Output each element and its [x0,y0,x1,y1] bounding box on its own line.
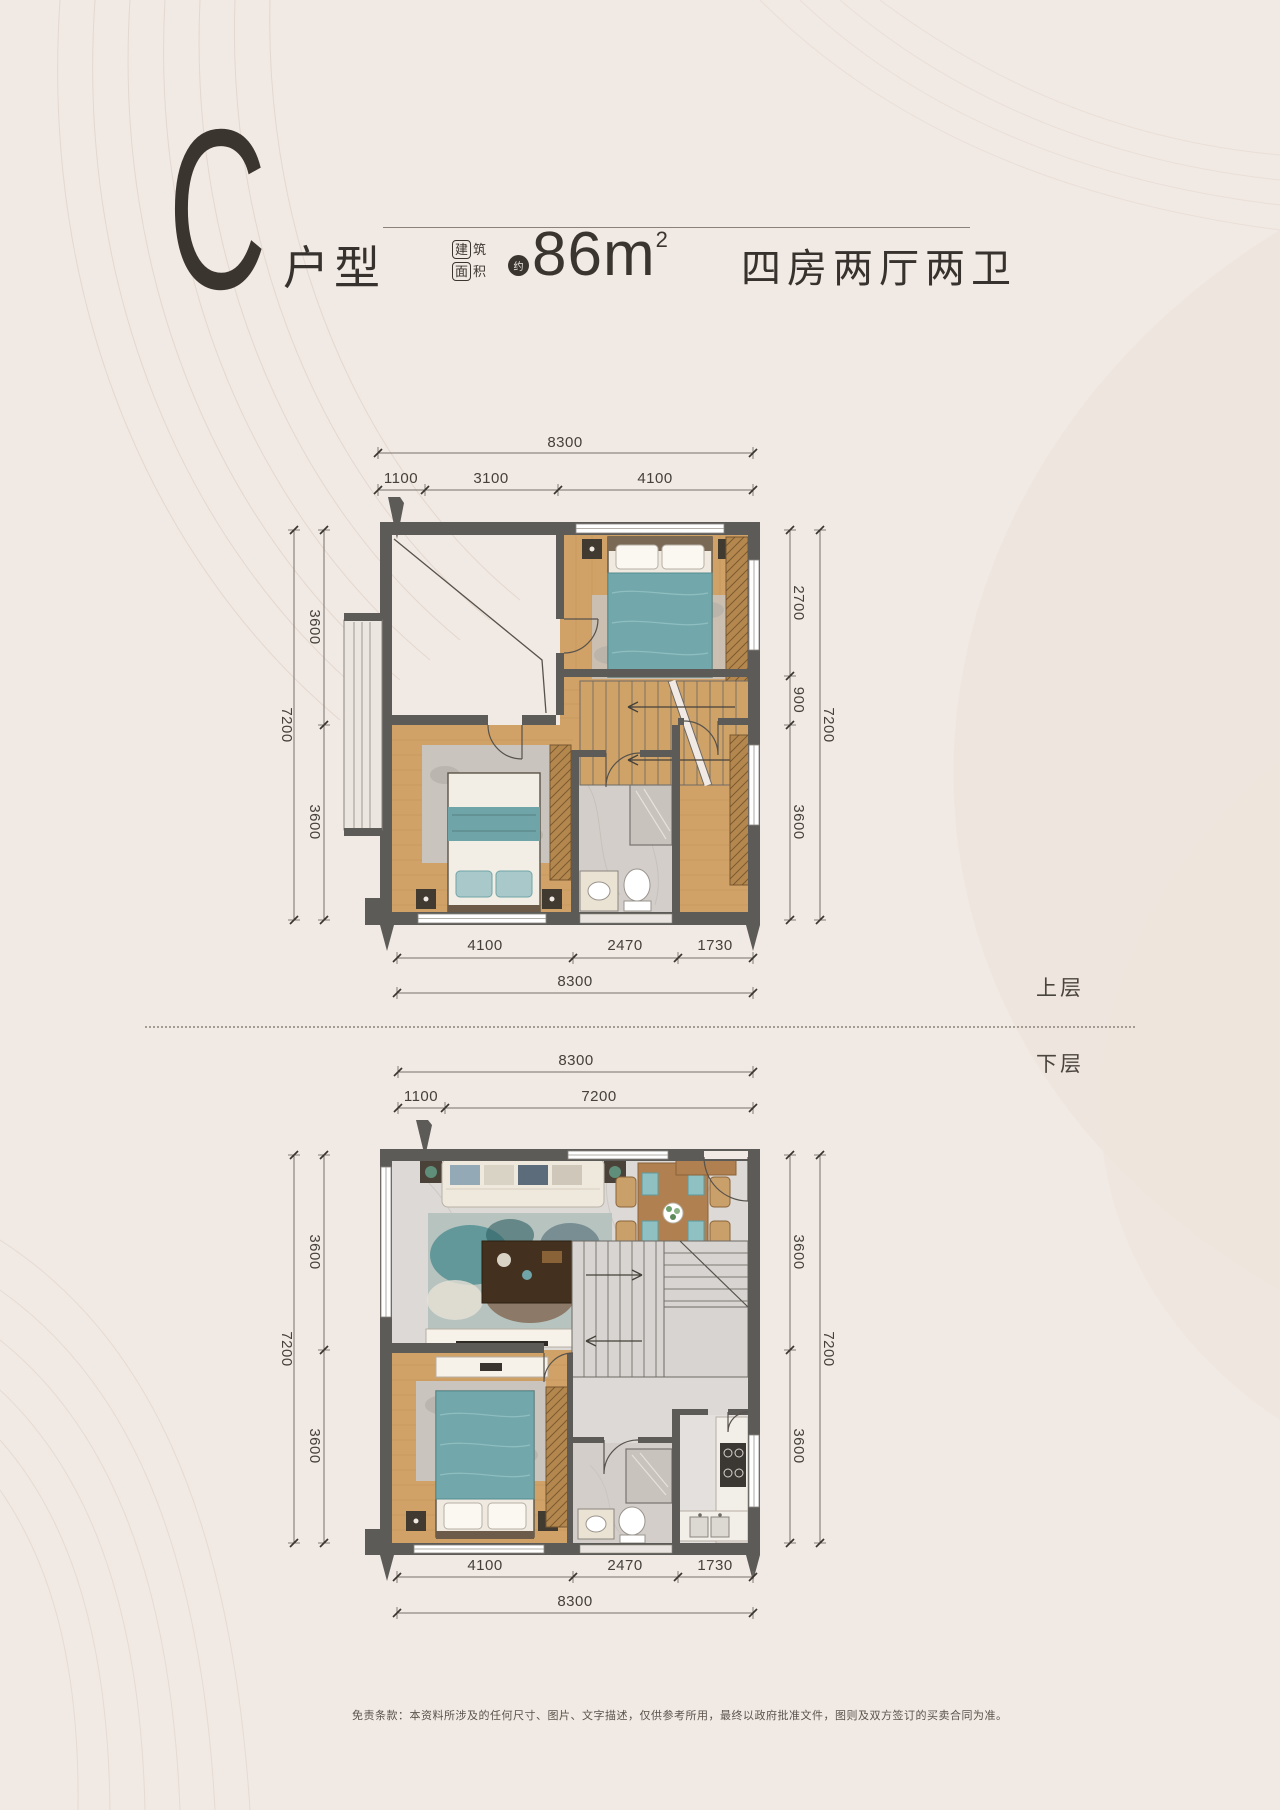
sink-icon [588,882,610,900]
toilet-icon [619,1507,645,1535]
dim-label: 900 [790,687,807,714]
dim-label: 3600 [306,804,323,839]
dim-label: 7200 [280,1331,295,1366]
header-divider-line [383,227,970,228]
dim-label: 3100 [473,470,508,487]
dim-label: 4100 [467,937,502,954]
approx-circle-badge: 约 [508,255,529,276]
lower-floor-label: 下层 [1036,1048,1084,1078]
dim-label: 2700 [790,585,807,620]
floorplan-poster: C 户型 建筑 面积 约 86m2 四房两厅两卫 [0,0,1280,1810]
badge-char: 筑 [473,243,486,256]
dim-label: 7200 [280,707,295,742]
built-area-badge: 建筑 面积 [452,240,486,284]
dim-label: 8300 [547,434,582,451]
dim-line [318,526,330,924]
sink-icon [690,1517,708,1537]
dim-label: 3600 [306,1234,323,1269]
dim-label: 1730 [697,1557,732,1574]
lower-floor-plan: 8300 1100 7200 7200 3600 3600 3600 3600 … [280,1045,880,1705]
dim-label: 2470 [607,937,642,954]
unit-letter: C [168,96,267,324]
dim-line [374,484,757,496]
dim-label: 3600 [790,1234,807,1269]
shower-icon [626,1449,672,1503]
balcony [344,613,382,836]
upper-floor-plan: 8300 1100 3100 4100 7200 3600 3600 2700 … [280,355,880,1015]
void-diagonal-line [394,539,546,713]
dim-label: 7200 [581,1088,616,1105]
dim-label: 1730 [697,937,732,954]
dim-label: 3600 [790,804,807,839]
dim-label: 3600 [306,1428,323,1463]
stove-icon [720,1443,746,1487]
dim-label: 3600 [790,1428,807,1463]
disclaimer-text: 免责条款：本资料所涉及的任何尺寸、图片、文字描述，仅供参考所用，最终以政府批准文… [352,1707,1008,1723]
dim-line [318,1151,330,1547]
badge-char: 面 [452,262,471,281]
dim-line [784,1151,796,1547]
dim-label: 3600 [306,609,323,644]
area-value: 86m2 [532,224,669,286]
badge-char: 建 [452,240,471,259]
floor-divider-dotted-line [145,1026,1135,1028]
layout-description: 四房两厅两卫 [741,236,1017,294]
dim-label: 7200 [820,707,837,742]
dim-label: 1100 [404,1088,438,1105]
sofa-icon [420,1159,626,1207]
wardrobe-icon [730,735,750,885]
unit-type-label: 户型 [283,232,385,298]
sink-icon [586,1516,606,1532]
staircase [572,1241,748,1377]
dim-label: 2470 [607,1557,642,1574]
badge-char: 积 [473,265,486,278]
coffee-table-icon [482,1241,574,1303]
dim-label: 8300 [558,1052,593,1069]
dim-label: 8300 [557,1593,592,1610]
wardrobe-icon [546,1387,568,1527]
dim-label: 4100 [637,470,672,487]
wardrobe-icon [550,745,571,880]
upper-floor-label: 上层 [1036,972,1084,1002]
dim-label: 4100 [467,1557,502,1574]
dim-line [394,1102,757,1114]
toilet-icon [624,869,650,901]
dim-label: 1100 [384,470,418,487]
dim-label: 8300 [557,973,592,990]
dim-label: 7200 [820,1331,837,1366]
